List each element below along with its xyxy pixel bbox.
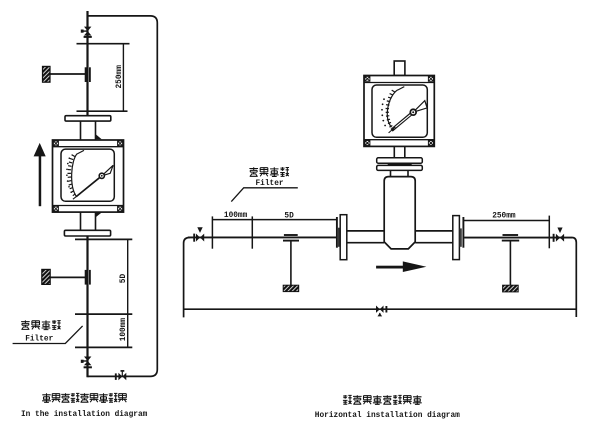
- svg-text:Horizontal installation diagra: Horizontal installation diagram: [315, 412, 460, 420]
- svg-text:100mm: 100mm: [224, 212, 248, 220]
- svg-text:Filter: Filter: [25, 336, 53, 344]
- svg-text:250mm: 250mm: [116, 65, 124, 89]
- svg-text:5D: 5D: [120, 274, 128, 284]
- svg-text:5D: 5D: [284, 212, 294, 220]
- svg-text:Filter: Filter: [256, 180, 284, 188]
- svg-text:In the installation diagram: In the installation diagram: [21, 411, 148, 419]
- svg-text:100mm: 100mm: [120, 318, 128, 342]
- svg-text:250mm: 250mm: [492, 213, 516, 221]
